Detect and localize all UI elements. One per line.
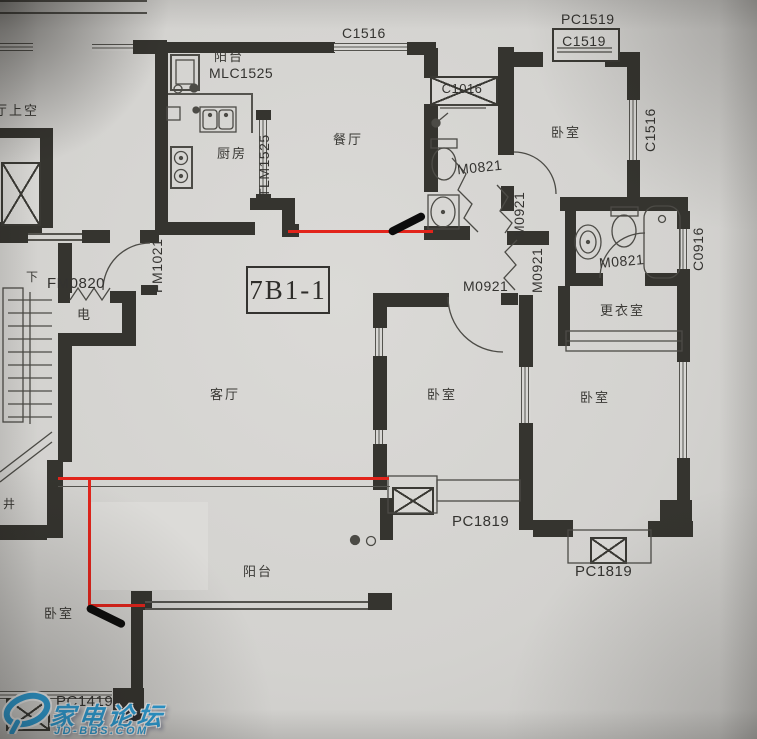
room-label-balcony-top: 阳台	[214, 50, 244, 63]
red-annotation-line-top	[288, 230, 433, 233]
code-pc1819-mid: PC1819	[452, 514, 509, 529]
watermark: 家电论坛 JD-BBS.COM	[2, 684, 52, 739]
room-label-living: 客厅	[210, 388, 240, 401]
stove	[171, 147, 192, 188]
code-c1016: C1016	[430, 82, 494, 95]
floorplan-photo: 厅上空 阳台 MLC1525 厨房 TLM1525 C1516 餐厅 C1016…	[0, 0, 757, 739]
erased-patch	[90, 502, 208, 590]
code-c1516-top: C1516	[342, 26, 386, 40]
room-label-void: 厅上空	[0, 104, 39, 117]
washbasin-right	[575, 225, 601, 259]
code-m0921-v1: M0921	[512, 192, 526, 237]
room-label-balcony-bottom: 阳台	[243, 565, 273, 578]
tr-bedroom-door-arc	[514, 152, 556, 194]
room-label-bedroom-mid: 卧室	[427, 388, 457, 401]
fridge	[171, 55, 199, 93]
code-m0821-right: M0821	[598, 252, 644, 270]
room-label-dining: 餐厅	[333, 133, 363, 146]
code-c1519: C1519	[552, 34, 616, 48]
code-pc1519: PC1519	[561, 12, 615, 26]
pc1819-window-mid	[388, 476, 520, 513]
label-stairs-down: 下	[26, 271, 40, 283]
room-label-bedroom-bl: 卧室	[44, 607, 74, 620]
toilet-right	[611, 207, 638, 247]
code-c0916: C0916	[691, 227, 705, 271]
room-label-dressing: 更衣室	[600, 304, 645, 317]
code-fm0820: FM0820	[47, 276, 105, 291]
code-tlm1525: TLM1525	[257, 134, 271, 197]
room-label-kitchen: 厨房	[217, 147, 247, 160]
watermark-site-url: JD-BBS.COM	[54, 725, 149, 737]
red-annotation-line-mid	[58, 477, 389, 480]
room-label-bedroom-right: 卧室	[580, 391, 610, 404]
closet	[566, 331, 682, 351]
red-annotation-line-vertical	[88, 477, 91, 607]
code-mlc1525: MLC1525	[209, 66, 273, 80]
code-c1516-right: C1516	[643, 108, 657, 152]
watermark-logo-icon	[2, 684, 52, 734]
code-m0921-v2: M0921	[530, 248, 544, 293]
shaft-vent-lines	[440, 105, 486, 108]
code-fm1021: FM1021	[150, 239, 164, 293]
mid-bedroom-door-arc	[448, 297, 503, 352]
unit-number-box: 7B1-1	[246, 266, 330, 314]
room-label-electric: 电	[77, 308, 92, 321]
stairs	[0, 288, 52, 482]
code-m0921-h: M0921	[463, 279, 508, 293]
room-label-bedroom-tr: 卧室	[551, 126, 581, 139]
label-shaft: 井	[3, 498, 17, 510]
bathtub	[644, 206, 680, 278]
washbasin-upper	[428, 195, 459, 229]
entrance-door-arc	[103, 243, 150, 290]
pc1819-window-right	[568, 530, 651, 563]
balcony-drains	[351, 536, 376, 546]
shower-valve	[432, 113, 448, 127]
kitchen-counter	[167, 107, 236, 132]
code-pc1819-right: PC1819	[575, 564, 632, 579]
